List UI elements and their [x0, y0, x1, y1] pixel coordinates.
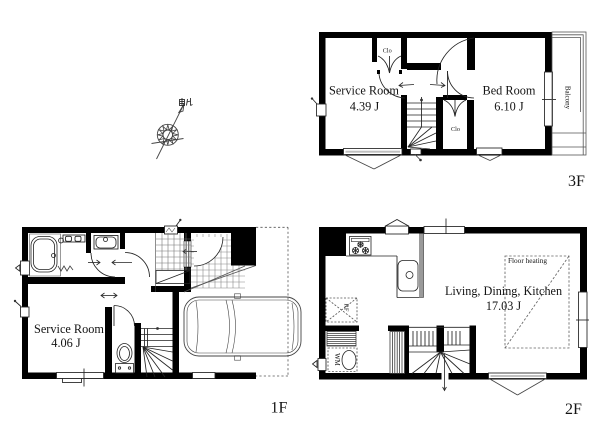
svg-text:WM: WM: [333, 353, 341, 367]
svg-text:Clo: Clo: [451, 126, 460, 133]
svg-text:1F: 1F: [270, 400, 287, 417]
svg-text:2F: 2F: [565, 401, 582, 418]
svg-text:Living, Dining, Kitchen: Living, Dining, Kitchen: [445, 284, 562, 298]
svg-text:Service Room: Service Room: [329, 84, 399, 98]
svg-text:17.03 J: 17.03 J: [486, 299, 521, 313]
svg-text:6.10 J: 6.10 J: [494, 99, 524, 113]
svg-text:3F: 3F: [568, 173, 585, 190]
svg-text:Balcony: Balcony: [563, 86, 571, 110]
svg-text:4.39 J: 4.39 J: [350, 99, 380, 113]
svg-text:Service Room: Service Room: [34, 322, 104, 336]
svg-text:Bed Room: Bed Room: [483, 84, 536, 98]
svg-text:RF: RF: [343, 304, 350, 312]
svg-text:4.06 J: 4.06 J: [51, 336, 81, 350]
svg-text:Clo: Clo: [383, 48, 392, 55]
svg-text:Floor heating: Floor heating: [508, 256, 547, 265]
